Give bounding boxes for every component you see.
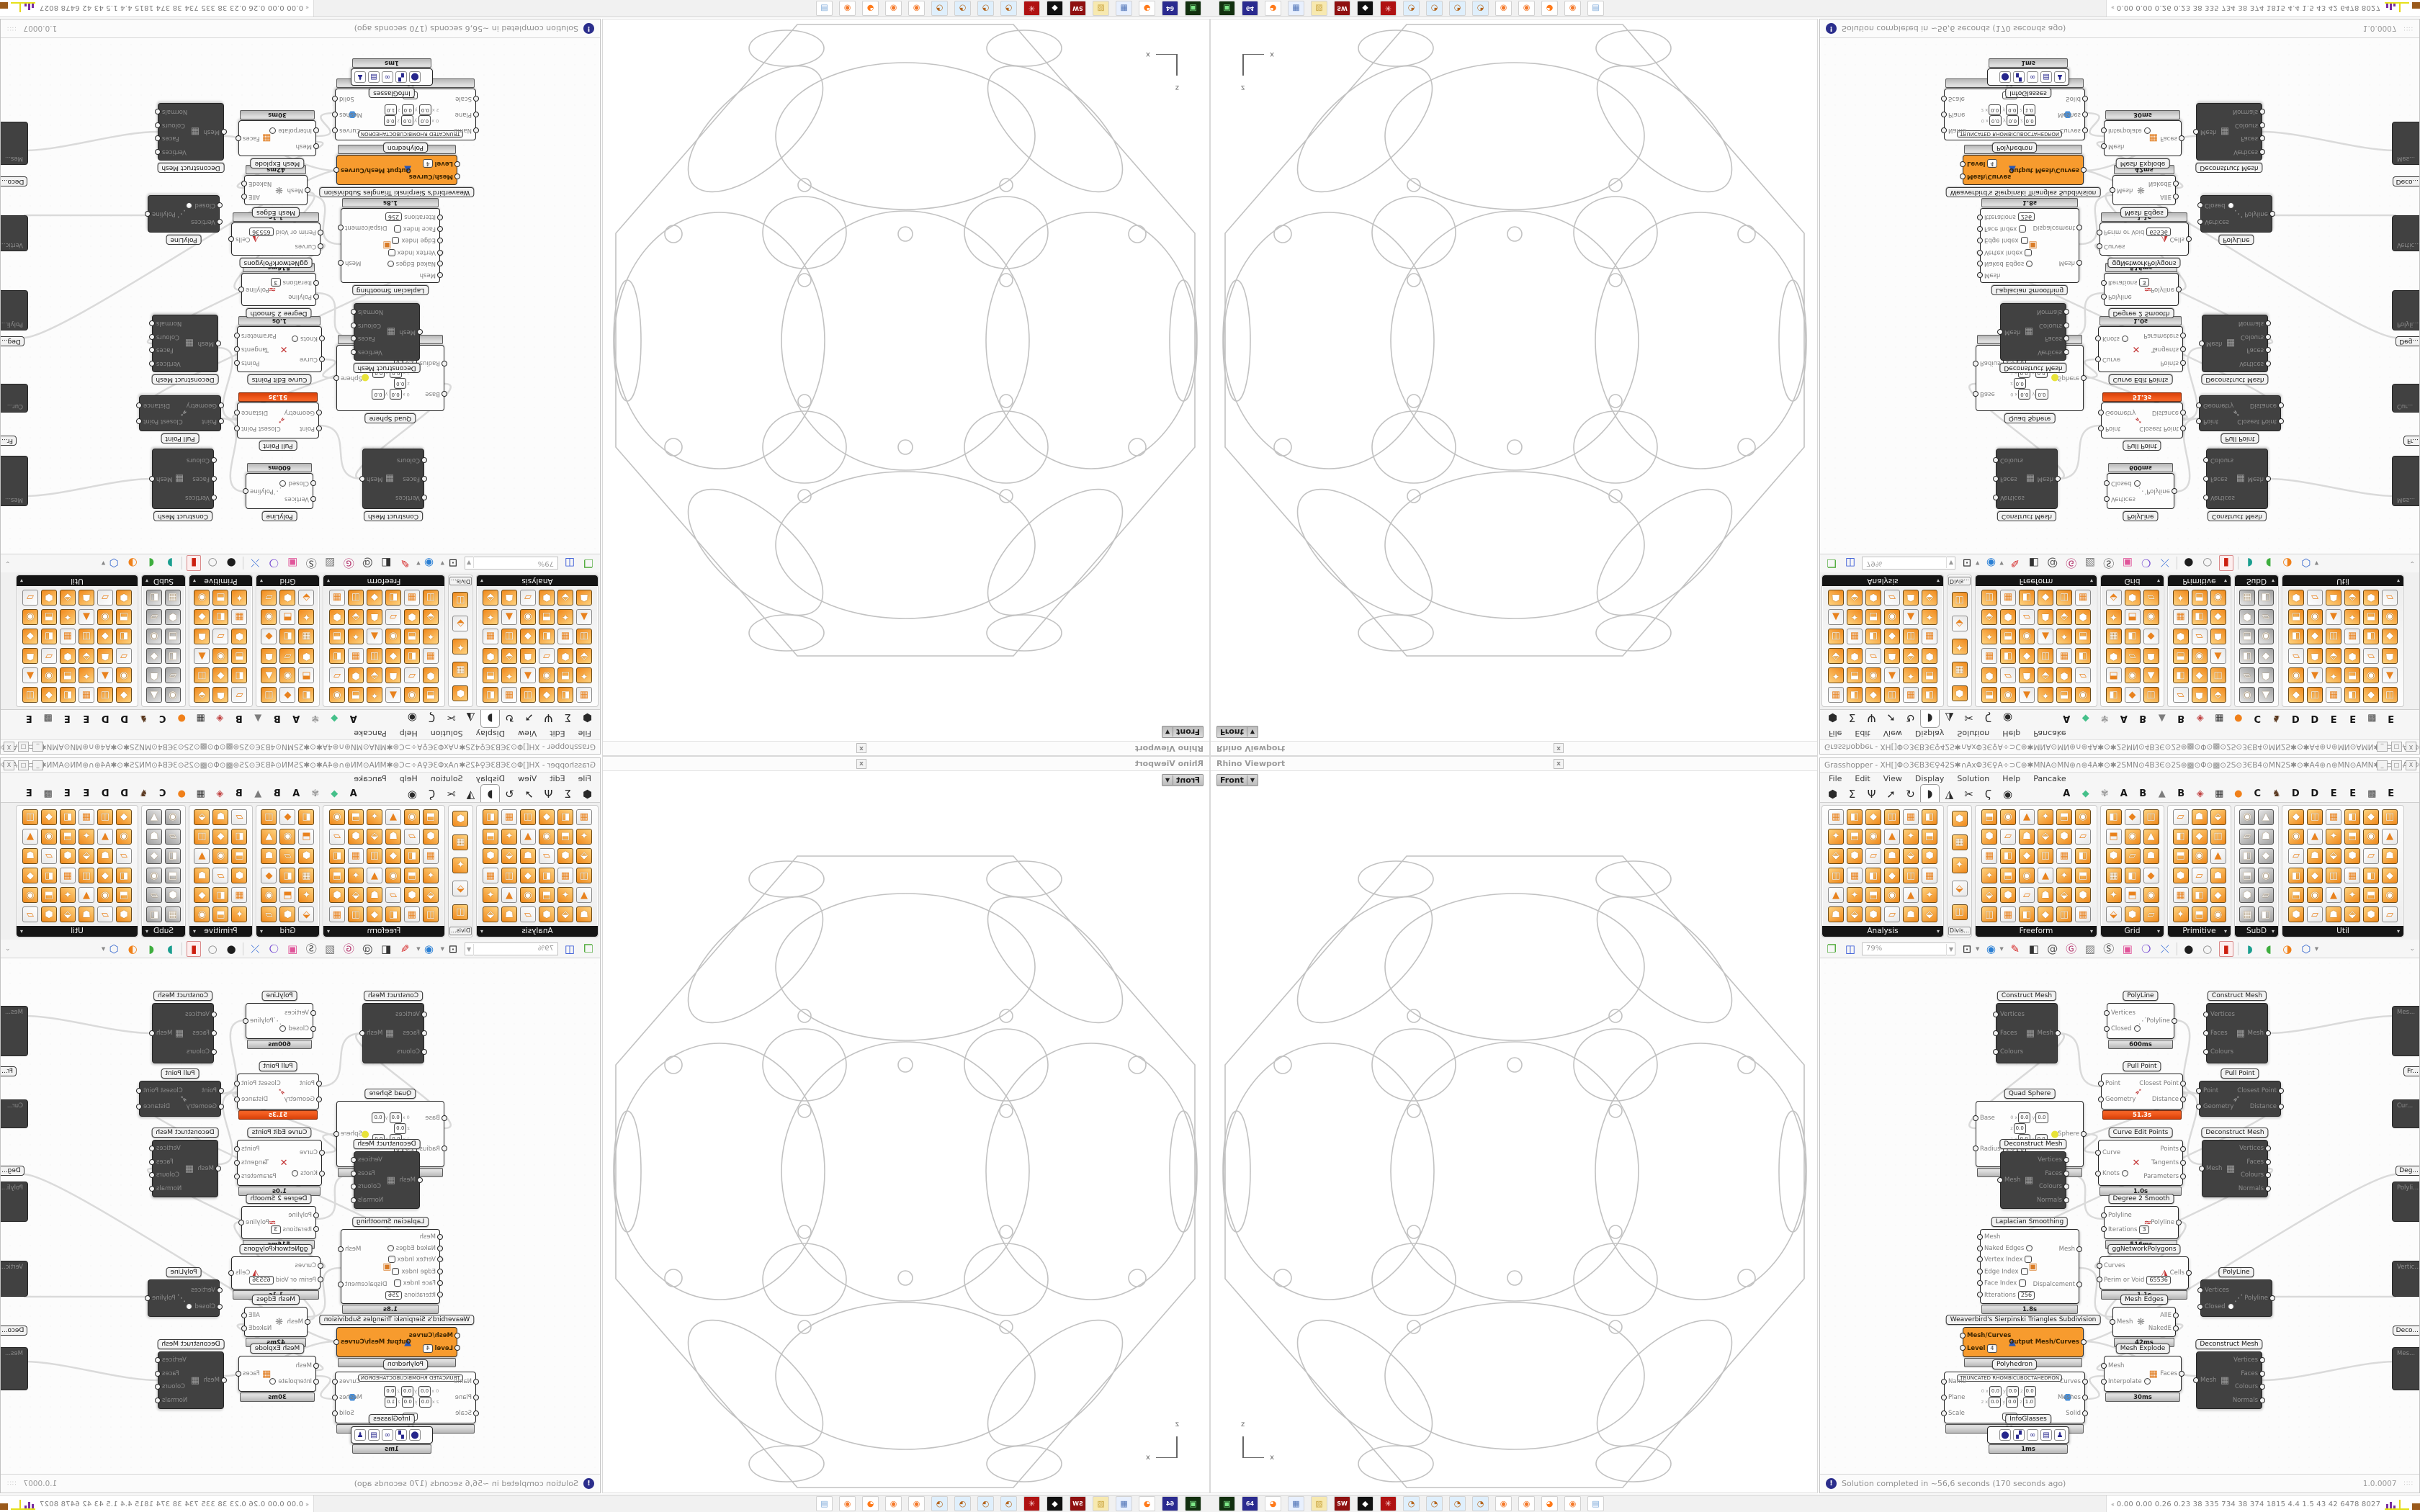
palette-footer-primitive[interactable]: Primitive▾ <box>2168 926 2231 937</box>
port[interactable]: Mesh <box>2200 1377 2215 1384</box>
galapagos-icon[interactable]: ❍ <box>266 557 281 571</box>
component-icon[interactable]: ◧ <box>2019 906 2035 922</box>
gh-node-weaverbird-s-sierpinski-triangles-subdivision[interactable]: Mesh/CurvesLevel4 ▲ Output Mesh/Curves <box>336 1327 457 1357</box>
preview-off-icon[interactable]: ● <box>224 557 238 571</box>
component-icon[interactable]: ▱ <box>2075 667 2091 683</box>
port[interactable]: Face Index <box>1984 225 2023 233</box>
component-icon[interactable]: ☗ <box>2192 687 2208 703</box>
component-icon[interactable]: ✦ <box>1922 609 1937 625</box>
menu-item-edit[interactable]: Edit <box>1855 774 1870 783</box>
clipped-node-label[interactable]: Deco... <box>2393 176 2419 186</box>
component-icon[interactable]: ◫ <box>2307 687 2323 703</box>
component-icon[interactable]: ▱ <box>2382 906 2398 922</box>
component-icon[interactable]: ◉ <box>2000 809 2016 825</box>
port[interactable]: Iterations3 <box>282 279 312 287</box>
component-icon[interactable]: ⬒ <box>1847 667 1863 683</box>
component-icon[interactable]: ◉ <box>2307 887 2323 903</box>
port[interactable]: Mesh <box>2117 186 2132 194</box>
component-icon[interactable]: ◆ <box>2363 687 2379 703</box>
palette-footer-freeform[interactable]: Freeform▾ <box>323 926 444 937</box>
minimize-icon[interactable]: _ <box>2377 742 2388 752</box>
component-icon[interactable]: ⬒ <box>539 887 555 903</box>
component-icon[interactable]: ⬢ <box>165 609 181 625</box>
component-icon[interactable]: ⬙ <box>423 609 439 625</box>
component-icon[interactable]: ◉ <box>1884 887 1900 903</box>
component-icon[interactable]: ▱ <box>97 906 113 922</box>
port[interactable]: Normals <box>2238 1185 2264 1192</box>
taskbar-firefox-icon[interactable]: ◕ <box>1139 1 1155 16</box>
component-icon[interactable]: ▱ <box>2307 590 2323 606</box>
port[interactable]: Closest Point <box>143 1087 183 1094</box>
component-icon[interactable]: ◉ <box>165 687 181 703</box>
sketch-pen-icon[interactable]: ✎ <box>2008 942 2022 956</box>
taskbar-gimp-2-icon[interactable]: ◔ <box>977 1 994 16</box>
tab-plugin-17[interactable]: E <box>19 786 39 802</box>
component-icon[interactable]: ▱ <box>2019 887 2035 903</box>
tab-plugin-12[interactable]: D <box>115 786 135 802</box>
component-icon[interactable]: ☗ <box>79 906 94 922</box>
tab-plugin-15[interactable]: E <box>2344 710 2363 726</box>
port[interactable]: Polyline <box>2151 286 2174 293</box>
taskbar-solidworks-icon[interactable]: SW <box>1070 1 1086 16</box>
taskbar-gimp-1-icon[interactable]: ◔ <box>1000 1496 1017 1511</box>
component-icon[interactable]: ⬙ <box>501 848 517 864</box>
galapagos-icon[interactable]: ❍ <box>2139 557 2154 571</box>
port[interactable]: Curve <box>2102 1149 2127 1156</box>
component-icon[interactable]: ▱ <box>146 609 162 625</box>
component-icon[interactable]: ⬒ <box>557 829 573 845</box>
component-icon[interactable]: ▦ <box>557 629 573 644</box>
component-icon[interactable]: ◉ <box>2210 590 2226 606</box>
maximize-icon[interactable]: □ <box>18 760 29 770</box>
clipped-node-label[interactable]: Deco... <box>1 176 27 186</box>
tab-core-6[interactable]: ◮ <box>1940 710 1959 726</box>
value-chip[interactable]: 3 <box>271 1225 280 1234</box>
node-label[interactable]: Construct Mesh <box>364 991 423 1001</box>
chevron-down-icon[interactable]: ▼ <box>1999 946 2003 952</box>
tab-core-8[interactable]: Ϛ <box>422 786 442 802</box>
infoglasses-icon[interactable]: ▤ <box>368 71 380 83</box>
port[interactable]: Naked Edges <box>1984 1245 2023 1252</box>
preview-wire-icon[interactable]: ○ <box>2200 557 2215 571</box>
component-icon[interactable]: ☗ <box>97 848 113 864</box>
component-icon[interactable]: ◆ <box>41 687 57 703</box>
component-icon[interactable]: ◉ <box>2363 667 2379 683</box>
grasshopper-titlebar[interactable]: Grasshopper - XH[]Φ⊙3ЄB3Є♀42S✱∩AxΦ3Є♀A÷⊃… <box>1820 739 2419 754</box>
component-icon[interactable]: ▲ <box>79 609 94 625</box>
taskbar-gimp-4-icon[interactable]: ◔ <box>1472 1 1489 16</box>
component-icon[interactable]: ⬢ <box>404 887 420 903</box>
infoglasses-icon[interactable]: ♟ <box>354 1429 366 1441</box>
component-icon[interactable]: ◧ <box>1847 809 1863 825</box>
taskbar-krita-icon[interactable]: ✳ <box>1023 1496 1040 1511</box>
port[interactable]: Polyline <box>2244 210 2268 217</box>
component-icon[interactable]: ◧ <box>232 829 248 845</box>
component-icon[interactable]: ⬢ <box>41 590 57 606</box>
grasshopper-titlebar[interactable]: Grasshopper - XH[]Φ⊙3ЄB3Є♀42S✱∩AxΦ3Є♀A÷⊃… <box>1820 758 2419 773</box>
clipped-node[interactable]: Cur... <box>2392 384 2419 413</box>
name-value-chip[interactable]: TRUNCATED RHOMBICUBOCTAHEDRON <box>1957 130 2062 138</box>
component-icon[interactable]: ⬒ <box>483 667 498 683</box>
component-icon[interactable]: ◆ <box>1865 809 1881 825</box>
port[interactable]: Faces <box>2210 1030 2231 1037</box>
port[interactable]: Mesh <box>2108 1362 2144 1369</box>
port[interactable]: Polyline <box>250 487 274 495</box>
component-icon[interactable]: ⬢ <box>165 887 181 903</box>
clipped-node[interactable]: Vertic... <box>1 1261 28 1297</box>
component-icon[interactable]: ▲ <box>385 809 401 825</box>
component-icon[interactable]: ⬒ <box>116 887 132 903</box>
port[interactable]: Normals <box>156 320 181 327</box>
port[interactable]: Polyline <box>2244 1295 2268 1302</box>
component-icon[interactable]: ⬒ <box>329 629 345 644</box>
port[interactable]: Scale <box>469 1410 472 1417</box>
component-icon[interactable]: ◉ <box>2382 609 2398 625</box>
component-icon[interactable]: ⬒ <box>2288 609 2304 625</box>
component-icon[interactable]: ▦ <box>2173 609 2189 625</box>
component-icon[interactable]: ⬙ <box>79 848 94 864</box>
port[interactable]: Curves <box>264 243 316 251</box>
component-icon[interactable]: ⬙ <box>2344 906 2360 922</box>
component-icon[interactable]: ◧ <box>1865 868 1881 883</box>
component-icon[interactable]: ▦ <box>79 809 94 825</box>
component-icon[interactable]: ◉ <box>385 868 401 883</box>
port[interactable]: Faces <box>2246 1158 2264 1166</box>
component-icon[interactable]: ☗ <box>1884 648 1900 664</box>
port[interactable]: Distance <box>2250 1103 2277 1110</box>
palette-footer-grid[interactable]: Grid▾ <box>256 926 319 937</box>
gh-node-pull-point[interactable]: PointGeometry ➶ Closest PointDistance <box>2101 402 2183 438</box>
component-icon[interactable]: ▦ <box>1847 629 1863 644</box>
taskbar-notepad-icon[interactable]: ▤ <box>1587 1496 1604 1511</box>
port[interactable]: Naked Edges <box>1984 260 2023 267</box>
port[interactable]: Colours <box>399 1048 420 1056</box>
node-label[interactable]: ggNetworkPolygons <box>239 258 312 268</box>
finder-icon[interactable]: Ⓢ <box>304 942 318 956</box>
component-icon[interactable]: ◆ <box>2258 848 2274 864</box>
port[interactable]: AllE <box>248 193 260 200</box>
component-icon[interactable]: ◫ <box>194 667 210 683</box>
component-icon[interactable]: ⬢ <box>453 811 469 827</box>
port[interactable]: Polyline <box>246 1219 269 1226</box>
component-icon[interactable]: ◫ <box>367 848 382 864</box>
component-icon[interactable]: ◆ <box>213 829 229 845</box>
component-icon[interactable]: ⬒ <box>299 829 315 845</box>
component-icon[interactable]: ⬙ <box>299 590 315 606</box>
gh-node-curve-edit-points[interactable]: CurveKnots ✕ PointsTangentsParameters <box>2098 326 2183 372</box>
menu-item-file[interactable]: File <box>1829 774 1842 783</box>
component-icon[interactable]: ⬙ <box>194 809 210 825</box>
port[interactable]: Vertices <box>2233 1356 2258 1364</box>
gift-wrap-icon[interactable]: ▣ <box>285 942 300 956</box>
gh-node-degree-2-smooth[interactable]: PolylineIterations3 ≈ Polyline <box>2104 1206 2179 1239</box>
port[interactable]: Mesh <box>2248 475 2264 482</box>
clipped-node[interactable]: Polyli... <box>2392 290 2419 330</box>
taskbar-floppy-64-icon[interactable]: 64 <box>1162 1 1178 16</box>
component-icon[interactable]: ◉ <box>2239 809 2255 825</box>
component-icon[interactable]: ▲ <box>1828 609 1844 625</box>
component-icon[interactable]: ▱ <box>520 590 536 606</box>
component-icon[interactable]: ▱ <box>232 809 248 825</box>
node-label[interactable]: Construct Mesh <box>153 991 212 1001</box>
value-chip[interactable] <box>388 249 395 256</box>
maximize-icon[interactable]: □ <box>2391 742 2402 752</box>
component-icon[interactable]: ✦ <box>2106 887 2122 903</box>
preview-off-icon[interactable]: ● <box>224 942 238 956</box>
palette-footer-subd[interactable]: SubD▾ <box>2235 575 2278 586</box>
port[interactable]: Solid <box>339 95 354 102</box>
rhino-viewport-titlebar[interactable]: Rhino Viewport x <box>1211 741 1817 755</box>
port[interactable]: Curves <box>2104 243 2156 251</box>
tab-plugin-8[interactable]: ▦ <box>2210 710 2229 726</box>
component-icon[interactable]: ◆ <box>520 868 536 883</box>
tab-core-4[interactable]: ↻ <box>500 786 519 802</box>
tab-plugin-14[interactable]: E <box>77 786 97 802</box>
infoglasses-icon[interactable]: ▤ <box>2040 1429 2052 1441</box>
gh-node-pull-point[interactable]: PointGeometry ➶ Closest PointDistance <box>139 395 221 431</box>
gh-node-construct-mesh[interactable]: VerticesFacesColours ▦ Mesh <box>362 449 424 509</box>
value-chip[interactable] <box>2134 480 2141 487</box>
port[interactable]: Interpolate <box>2108 127 2144 134</box>
gh-node-mesh-explode[interactable]: MeshInterpolate ▦ Faces <box>2104 120 2182 156</box>
component-icon[interactable]: ▱ <box>404 667 420 683</box>
clipped-node[interactable]: Mes... <box>1 456 28 506</box>
value-chip[interactable]: 256 <box>2018 212 2035 221</box>
gh-node-deconstruct-mesh[interactable]: Mesh ▦ VerticesFacesColoursNormals <box>2202 1140 2268 1197</box>
preview-eye-icon[interactable]: ◉ <box>1984 557 1998 571</box>
component-icon[interactable]: ⬢ <box>2344 648 2360 664</box>
component-icon[interactable]: ☗ <box>367 887 382 903</box>
component-icon[interactable]: ⬢ <box>329 887 345 903</box>
component-icon[interactable]: ▦ <box>501 687 517 703</box>
component-icon[interactable]: ◉ <box>2143 887 2159 903</box>
component-icon[interactable]: ⬒ <box>2106 667 2122 683</box>
component-icon[interactable]: ▦ <box>1922 629 1937 644</box>
component-icon[interactable]: ◫ <box>97 687 113 703</box>
remote-panel-icon[interactable]: ◧ <box>2027 942 2041 956</box>
infoglasses-icon[interactable]: ∞ <box>382 71 393 83</box>
port[interactable]: Normals <box>162 1397 187 1404</box>
tab-core-4[interactable]: ↻ <box>500 710 519 726</box>
component-icon[interactable]: ◉ <box>2258 868 2274 883</box>
port[interactable]: Meshes <box>339 1394 362 1401</box>
close-icon[interactable]: X <box>4 760 14 770</box>
component-icon[interactable]: ✦ <box>423 629 439 644</box>
zoom-level-dropdown[interactable]: 79%▼ <box>465 942 558 955</box>
viewport-view-dropdown[interactable]: Front ▼ <box>1162 726 1204 738</box>
port[interactable]: Plane <box>469 111 472 118</box>
infoglasses-icon[interactable]: ▞ <box>2013 71 2025 83</box>
component-icon[interactable]: ▲ <box>501 887 517 903</box>
tab-plugin-0[interactable]: A <box>344 786 364 802</box>
port[interactable]: Vertices <box>287 1009 309 1017</box>
node-label[interactable]: PolyLine <box>2218 235 2254 245</box>
tab-plugin-9[interactable]: ● <box>172 710 192 726</box>
menu-item-solution[interactable]: Solution <box>431 729 463 738</box>
port[interactable]: Cells <box>2170 1269 2184 1277</box>
component-icon[interactable]: ▲ <box>97 829 113 845</box>
component-icon[interactable]: ⬒ <box>2000 868 2016 883</box>
value-chip[interactable] <box>2025 1256 2032 1263</box>
port[interactable]: Colours <box>2210 1048 2231 1056</box>
node-label[interactable]: ggNetworkPolygons <box>2107 258 2180 268</box>
component-icon[interactable]: ⬙ <box>2106 906 2122 922</box>
port[interactable]: Scale <box>1948 95 1951 102</box>
component-icon[interactable]: ✦ <box>483 887 498 903</box>
value-chip[interactable] <box>292 336 298 343</box>
component-icon[interactable]: ◉ <box>329 809 345 825</box>
component-icon[interactable]: ▦ <box>483 868 498 883</box>
port[interactable]: Meshes <box>339 111 362 118</box>
component-icon[interactable]: ◧ <box>385 906 401 922</box>
tab-core-3[interactable]: ➚ <box>519 786 539 802</box>
port[interactable]: Colours <box>2000 456 2021 464</box>
port[interactable]: Mesh <box>199 1165 214 1172</box>
component-icon[interactable]: ◫ <box>453 592 469 608</box>
annotate-icon[interactable]: @ <box>360 557 375 571</box>
gh-node-construct-mesh[interactable]: VerticesFacesColours ▦ Mesh <box>1996 449 2058 509</box>
port[interactable]: Mesh/Curves <box>1967 1332 2004 1339</box>
port[interactable]: Mesh <box>400 328 416 336</box>
port[interactable]: Vertices <box>2000 494 2021 501</box>
taskbar-krita-icon[interactable]: ✳ <box>1380 1496 1397 1511</box>
port[interactable]: Vertices <box>162 148 187 156</box>
gh-node-polyline[interactable]: VerticesClosed ⋰ Polyline <box>246 1003 313 1039</box>
port[interactable]: Vertices <box>358 1156 382 1164</box>
port[interactable]: Mesh <box>2117 1318 2132 1326</box>
component-icon[interactable]: ✦ <box>1903 829 1919 845</box>
component-icon[interactable]: ◧ <box>557 687 573 703</box>
zoom-level-dropdown[interactable]: 79%▼ <box>1862 557 1955 570</box>
component-icon[interactable]: ▦ <box>1981 648 1997 664</box>
port[interactable]: Colours <box>189 1048 210 1056</box>
taskbar-floppy-64-icon[interactable]: 64 <box>1162 1496 1178 1511</box>
taskbar-folder-icon[interactable]: ▨ <box>1311 1 1327 16</box>
tab-plugin-15[interactable]: E <box>58 710 77 726</box>
port[interactable]: Mesh <box>199 340 214 347</box>
node-label[interactable]: Pull Point <box>259 1061 297 1071</box>
component-icon[interactable]: ◧ <box>2192 609 2208 625</box>
component-icon[interactable]: ◆ <box>2019 848 2035 864</box>
port[interactable]: Perim or Void65536 <box>2104 228 2156 237</box>
port[interactable]: Mesh <box>367 1030 382 1037</box>
resize-grip-icon[interactable]: ∷∷ <box>6 1480 16 1488</box>
clipped-node[interactable]: Vertic... <box>2392 215 2419 251</box>
tab-core-2[interactable]: Ψ <box>539 710 558 726</box>
node-label[interactable]: Degree 2 Smooth <box>246 1194 312 1204</box>
menu-item-solution[interactable]: Solution <box>1957 774 1989 783</box>
component-icon[interactable]: ▱ <box>22 906 38 922</box>
gh-node-laplacian-smoothing[interactable]: MeshNaked EdgesVertex IndexEdge IndexFac… <box>341 208 440 283</box>
port[interactable]: Closest Point <box>143 418 183 425</box>
port[interactable]: Normals <box>2233 108 2258 115</box>
component-icon[interactable]: ▱ <box>329 667 345 683</box>
component-icon[interactable]: ◉ <box>2019 629 2035 644</box>
component-icon[interactable]: ✦ <box>1903 667 1919 683</box>
component-icon[interactable]: ◆ <box>146 648 162 664</box>
port[interactable]: Mesh <box>2059 1246 2075 1253</box>
component-icon[interactable]: ▦ <box>60 868 76 883</box>
tab-plugin-0[interactable]: A <box>2057 710 2076 726</box>
menu-item-display[interactable]: Display <box>476 774 506 783</box>
palette-footer-grid[interactable]: Grid▾ <box>256 575 319 586</box>
component-icon[interactable]: ☗ <box>213 687 229 703</box>
port[interactable]: Curve <box>293 1149 318 1156</box>
component-icon[interactable]: ▱ <box>146 887 162 903</box>
port[interactable]: Vertices <box>189 1011 210 1018</box>
port[interactable]: Mesh <box>1984 1233 2023 1241</box>
component-icon[interactable]: ⬢ <box>2000 609 2016 625</box>
port[interactable]: Knots <box>293 1170 318 1177</box>
node-label[interactable]: Mesh Edges <box>252 207 300 217</box>
component-icon[interactable]: ▦ <box>232 609 248 625</box>
gh-node-deconstruct-mesh[interactable]: Mesh ▦ VerticesFacesColoursNormals <box>2202 315 2268 372</box>
node-label[interactable]: Curve Edit Points <box>2109 1128 2173 1138</box>
gh-node-degree-2-smooth[interactable]: PolylineIterations3 ≈ Polyline <box>241 1206 316 1239</box>
node-label[interactable]: Polyhedron <box>383 143 428 153</box>
component-icon[interactable]: ◧ <box>2000 648 2016 664</box>
port[interactable]: Level4 <box>1967 160 2004 168</box>
component-icon[interactable]: ◉ <box>2075 687 2091 703</box>
port[interactable]: Point <box>192 1087 217 1094</box>
component-icon[interactable]: ▦ <box>483 629 498 644</box>
component-icon[interactable]: ◉ <box>280 667 296 683</box>
port[interactable]: Dispalcement <box>345 225 387 232</box>
tab-core-7[interactable]: ✂ <box>442 710 461 726</box>
preview-shaded-icon[interactable]: ▮ <box>2219 941 2233 957</box>
component-icon[interactable]: ✦ <box>2056 868 2072 883</box>
component-icon[interactable]: ▦ <box>423 848 439 864</box>
zoom-extents-icon[interactable]: ⊡ <box>1960 942 1974 956</box>
component-icon[interactable]: ⬒ <box>213 590 229 606</box>
component-icon[interactable]: ⬙ <box>348 887 364 903</box>
component-icon[interactable]: ◧ <box>2173 829 2189 845</box>
port[interactable]: Vertex Index <box>397 1256 436 1264</box>
gh-node-ggnetworkpolygons[interactable]: CurvesPerim or Void65536 ◮ Cells <box>231 1256 321 1290</box>
tab-plugin-11[interactable]: ♞ <box>134 710 153 726</box>
remote-panel-icon[interactable]: ◧ <box>379 557 393 571</box>
component-icon[interactable]: ▱ <box>116 648 132 664</box>
port[interactable]: Curve <box>2102 356 2127 364</box>
port[interactable]: Parameters <box>2143 1173 2179 1180</box>
node-label[interactable]: Construct Mesh <box>1997 511 2056 521</box>
gh-node-construct-mesh[interactable]: VerticesFacesColours ▦ Mesh <box>2206 1003 2268 1063</box>
component-icon[interactable]: ▱ <box>261 590 277 606</box>
component-icon[interactable]: ▦ <box>2239 590 2255 606</box>
component-icon[interactable]: ◫ <box>348 590 364 606</box>
component-icon[interactable]: ▦ <box>576 809 592 825</box>
component-icon[interactable]: ⬙ <box>576 648 592 664</box>
component-icon[interactable]: ◆ <box>2210 609 2226 625</box>
component-icon[interactable]: ▱ <box>1865 848 1881 864</box>
node-label[interactable]: Pull Point <box>259 441 297 451</box>
port[interactable]: Faces <box>2045 1170 2062 1177</box>
component-icon[interactable]: ◆ <box>385 648 401 664</box>
taskbar-folder-icon[interactable]: ▨ <box>1093 1496 1109 1511</box>
node-label[interactable]: Polyhedron <box>1992 1359 2037 1369</box>
tab-core-9[interactable]: ◉ <box>1998 786 2017 802</box>
gh-canvas[interactable]: Construct Mesh VerticesFacesColours ▦ Me… <box>1 958 600 1474</box>
component-icon[interactable]: ⬙ <box>1952 616 1968 631</box>
port[interactable]: Normals <box>162 108 187 115</box>
component-icon[interactable]: ☗ <box>213 809 229 825</box>
component-icon[interactable]: ◧ <box>329 648 345 664</box>
tab-plugin-14[interactable]: E <box>77 710 97 726</box>
preview-shaded-icon[interactable]: ▮ <box>187 556 201 572</box>
taskbar-firefox-2-icon[interactable]: ◕ <box>1541 1 1558 16</box>
component-icon[interactable]: ◉ <box>329 687 345 703</box>
port[interactable]: Knots <box>2102 336 2127 343</box>
